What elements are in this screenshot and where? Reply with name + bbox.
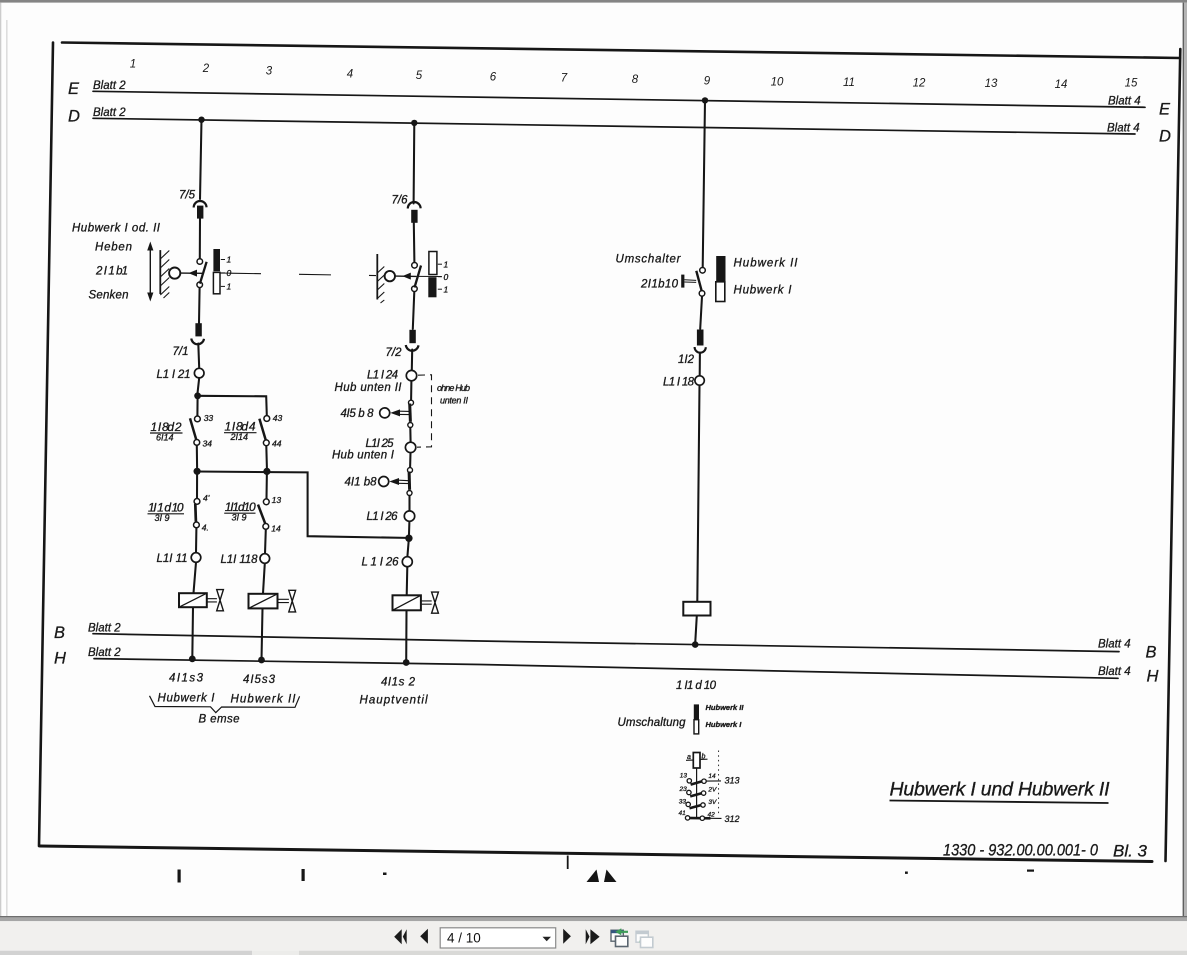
svg-text:Hubwerk I od. II: Hubwerk I od. II: [72, 223, 161, 235]
svg-text:unten II: unten II: [440, 396, 468, 406]
svg-text:313: 313: [725, 775, 740, 785]
svg-text:23: 23: [679, 786, 688, 793]
svg-text:B emse: B emse: [199, 714, 240, 726]
svg-text:13: 13: [272, 495, 282, 505]
svg-text:Senken: Senken: [89, 290, 129, 302]
svg-text:4I1s3: 4I1s3: [169, 673, 204, 685]
svg-text:41: 41: [679, 810, 687, 817]
svg-text:13: 13: [680, 773, 688, 780]
svg-text:2I1b10: 2I1b10: [640, 278, 679, 290]
svg-text:7/2: 7/2: [386, 347, 403, 359]
svg-text:34: 34: [203, 438, 213, 448]
svg-text:Blatt 2: Blatt 2: [93, 107, 126, 119]
svg-text:B: B: [54, 624, 65, 642]
svg-text:4 / 10: 4 / 10: [447, 930, 481, 945]
svg-text:1330 - 932.00.00.001- 0: 1330 - 932.00.00.001- 0: [943, 841, 1098, 860]
svg-text:43: 43: [273, 413, 283, 423]
svg-text:11: 11: [843, 77, 855, 89]
svg-text:1: 1: [227, 255, 232, 265]
svg-text:4: 4: [347, 69, 353, 81]
svg-text:E: E: [68, 80, 80, 98]
svg-text:Hubwerk II: Hubwerk II: [231, 693, 297, 705]
svg-text:1: 1: [444, 259, 449, 269]
svg-text:33: 33: [679, 798, 687, 805]
svg-text:Blatt 2: Blatt 2: [93, 80, 126, 92]
svg-text:L1I 25: L1I 25: [366, 438, 395, 450]
svg-text:Bl. 3: Bl. 3: [1113, 842, 1148, 861]
svg-text:Hub unten II: Hub unten II: [335, 382, 403, 394]
svg-text:D: D: [1159, 128, 1171, 146]
svg-text:2I14: 2I14: [230, 432, 249, 442]
svg-text:3I 9: 3I 9: [232, 513, 247, 523]
svg-text:312: 312: [725, 814, 740, 824]
svg-text:4I5s3: 4I5s3: [243, 674, 276, 686]
svg-text:L1I 11: L1I 11: [157, 553, 188, 565]
svg-text:14: 14: [271, 524, 281, 534]
svg-text:4.: 4.: [202, 523, 209, 533]
svg-text:33: 33: [204, 413, 214, 423]
svg-text:4I1s 2: 4I1s 2: [381, 677, 416, 689]
svg-text:8: 8: [632, 74, 639, 86]
svg-text:Hubwerk I: Hubwerk I: [158, 692, 216, 704]
svg-text:L1 I 18: L1 I 18: [663, 376, 695, 388]
svg-text:L1I 118: L1I 118: [221, 554, 259, 566]
svg-text:Blatt 2: Blatt 2: [88, 622, 121, 634]
svg-text:2: 2: [202, 63, 210, 75]
svg-text:Hubwerk I: Hubwerk I: [734, 285, 793, 297]
svg-text:2 I 1 b1: 2 I 1 b1: [95, 266, 128, 278]
svg-text:L1 I 24: L1 I 24: [367, 370, 398, 382]
svg-text:15: 15: [1125, 78, 1138, 90]
svg-text:Hubwerk II: Hubwerk II: [706, 703, 745, 712]
svg-text:6I14: 6I14: [156, 433, 174, 443]
svg-text:7/6: 7/6: [392, 194, 409, 206]
svg-text:L 1 I 26: L 1 I 26: [362, 556, 400, 568]
svg-text:9: 9: [704, 76, 711, 88]
svg-text:7/1: 7/1: [173, 346, 189, 358]
svg-text:4I5 b 8: 4I5 b 8: [341, 408, 375, 420]
svg-text:Hubwerk II: Hubwerk II: [734, 257, 799, 269]
svg-text:7/5: 7/5: [179, 190, 196, 202]
svg-text:L1 I 21: L1 I 21: [157, 369, 191, 381]
svg-text:1: 1: [444, 284, 449, 294]
svg-text:1: 1: [130, 59, 136, 71]
svg-text:1 I1 d 10: 1 I1 d 10: [676, 680, 717, 692]
svg-text:Blatt 4: Blatt 4: [1108, 95, 1141, 107]
svg-text:Heben: Heben: [95, 242, 132, 254]
svg-text:0: 0: [444, 272, 449, 282]
svg-text:Hubwerk I: Hubwerk I: [706, 720, 743, 729]
svg-text:7: 7: [561, 73, 568, 85]
svg-text:6: 6: [490, 72, 497, 84]
svg-text:Umschaltung: Umschaltung: [618, 717, 687, 729]
svg-text:14: 14: [1055, 79, 1068, 91]
svg-text:13: 13: [985, 78, 998, 90]
svg-text:Hauptventil: Hauptventil: [360, 694, 428, 706]
svg-text:Blatt 4: Blatt 4: [1098, 639, 1131, 651]
svg-text:3V: 3V: [708, 799, 717, 806]
svg-text:Blatt 4: Blatt 4: [1107, 123, 1140, 135]
svg-text:D: D: [68, 108, 80, 126]
svg-text:Hubwerk I und Hubwerk II: Hubwerk I und Hubwerk II: [890, 779, 1111, 801]
svg-text:4I1 b8: 4I1 b8: [345, 476, 378, 488]
svg-text:4': 4': [203, 493, 210, 503]
svg-text:1I2: 1I2: [678, 354, 695, 366]
svg-text:E: E: [1159, 101, 1171, 119]
svg-text:12: 12: [913, 78, 926, 90]
svg-text:Hub unten I: Hub unten I: [332, 450, 395, 462]
svg-text:B: B: [1146, 644, 1157, 662]
svg-text:Umschalter: Umschalter: [616, 254, 682, 266]
svg-text:14: 14: [708, 773, 716, 780]
svg-text:44: 44: [272, 439, 282, 449]
svg-text:Blatt 4: Blatt 4: [1098, 666, 1131, 678]
svg-text:42: 42: [708, 812, 716, 819]
svg-text:10: 10: [771, 76, 784, 88]
svg-text:1: 1: [227, 282, 232, 292]
svg-text:Blatt 2: Blatt 2: [88, 647, 121, 659]
svg-text:H: H: [54, 649, 66, 667]
svg-text:3: 3: [266, 66, 273, 78]
svg-text:ohne Hub: ohne Hub: [437, 383, 470, 393]
svg-text:H: H: [1147, 668, 1159, 686]
svg-text:3I 9: 3I 9: [155, 513, 170, 523]
svg-text:2V: 2V: [707, 786, 717, 793]
svg-text:5: 5: [416, 70, 423, 82]
svg-text:L1 I 26: L1 I 26: [367, 511, 399, 523]
